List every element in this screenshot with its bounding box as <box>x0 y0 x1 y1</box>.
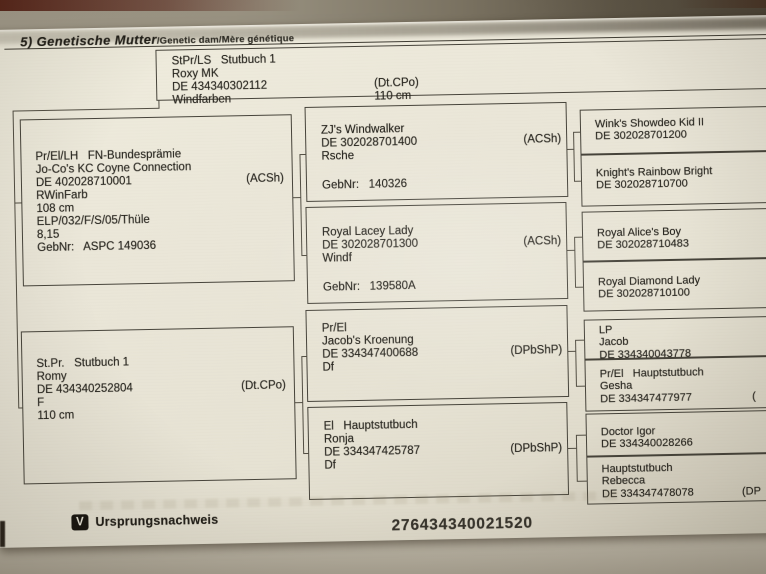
connector-line <box>303 453 309 454</box>
pedigree-line-text: 108 cm <box>36 202 74 215</box>
connector-line <box>576 435 578 482</box>
connector-line <box>301 255 307 256</box>
pedigree-line-text: F <box>37 397 44 409</box>
pedigree-box-g4-6: Pr/El HauptstutbuchGeshaDE 334347477977( <box>584 355 766 412</box>
pedigree-line-text: DE 334340028266 <box>601 437 693 451</box>
connector-line <box>574 237 576 288</box>
breed-code: (Dt.CPo) <box>241 379 286 393</box>
connector-line <box>573 132 581 133</box>
pedigree-line-text: DE 334347400688 <box>322 347 418 361</box>
pedigree-line-text: GebNr: ASPC 149036 <box>37 240 156 254</box>
pedigree-line-text: LP <box>599 324 613 336</box>
pedigree-line-text: ZJ's Windwalker <box>321 123 405 137</box>
pedigree-line-text: Royal Lacey Lady <box>322 225 414 239</box>
pedigree-line-text: DE 302028710483 <box>597 238 689 252</box>
pedigree-line-text: DE 302028710100 <box>598 287 690 301</box>
connector-line <box>18 407 23 408</box>
pedigree-box-g4-7: Doctor IgorDE 334340028266 <box>585 409 766 457</box>
pedigree-line-text: 110 cm <box>37 409 74 422</box>
pedigree-line-text: DE 302028701400 <box>321 136 417 150</box>
connector-line <box>573 132 575 182</box>
breed-code: (Dt.CPo) <box>374 77 419 91</box>
pedigree-line-text: Rsche <box>321 150 354 163</box>
connector-line <box>301 356 304 454</box>
connector-line <box>301 356 307 357</box>
pedigree-box-g4-1: Wink's Showdeo Kid IIDE 302028701200 <box>580 105 766 155</box>
pedigree-line-text: Windf <box>322 252 352 265</box>
connector-line <box>576 386 586 387</box>
pedigree-line-text: Rebecca <box>602 475 646 488</box>
v-badge: V <box>71 514 88 530</box>
gebnr-line: GebNr: 140326 <box>322 175 567 193</box>
pedigree-box-g3-sire-sire: ZJ's WindwalkerDE 302028701400(ACSh)Rsch… <box>305 102 569 202</box>
pedigree-box-g4-2: Knight's Rainbow BrightDE 302028710700 <box>581 150 766 207</box>
photo-background-maroon-strip <box>0 0 300 11</box>
connector-line <box>13 108 160 112</box>
connector-line <box>577 481 588 482</box>
connector-line <box>299 154 306 155</box>
connector-line <box>576 435 587 436</box>
pedigree-line-text: ELP/032/F/S/05/Thüle <box>37 214 150 228</box>
document-number: 276434340021520 <box>391 517 533 533</box>
footer: V Ursprungsnachweis <box>71 512 218 531</box>
pedigree-box-g3-dam-sire: Pr/ElJacob's KroenungDE 334347400688(DPb… <box>305 305 569 402</box>
breed-code: (ACSh) <box>523 133 561 147</box>
pedigree-box-genetic-dam: StPr/LS Stutbuch 1Roxy MKDE 434340302112… <box>155 37 766 101</box>
connector-line <box>574 237 583 238</box>
pedigree-line-text: Df <box>324 459 336 471</box>
pedigree-line-text: DE 334347425787 <box>324 445 420 459</box>
connector-line <box>575 340 577 387</box>
connector-line <box>14 202 21 203</box>
pedigree-box-g4-4: Royal Diamond LadyDE 302028710100 <box>583 257 766 312</box>
pedigree-line-text: Pr/El <box>322 322 347 334</box>
pedigree-line-text: St.Pr. Stutbuch 1 <box>36 356 129 370</box>
photo-background-corner-sliver <box>0 521 5 547</box>
pedigree-line-text: Gesha <box>600 380 633 393</box>
breed-code: (DP <box>742 485 761 498</box>
breed-code: (DPbShP) <box>510 442 562 456</box>
origin-certificate-label: Ursprungsnachweis <box>95 513 218 528</box>
pedigree-line-text: DE 302028701300 <box>322 238 418 252</box>
pedigree-line-text: RWinFarb <box>36 189 88 202</box>
breed-code: (ACSh) <box>246 172 284 186</box>
pedigree-box-g4-3: Royal Alice's BoyDE 302028710483 <box>582 207 766 262</box>
pedigree-line-text: Hauptstutbuch <box>601 462 672 475</box>
pedigree-line-text: DE 402028710001 <box>36 175 132 189</box>
photo-background-maroon-right <box>676 0 766 8</box>
connector-line <box>575 340 585 341</box>
pedigree-line-text: Ronja <box>324 433 354 446</box>
connector-line <box>299 154 302 256</box>
pedigree-line-text: Roxy MK <box>172 68 219 81</box>
pedigree-line-text: StPr/LS Stutbuch 1 <box>172 54 276 68</box>
connector-line <box>574 181 582 182</box>
pedigree-line-text: DE 434340252804 <box>37 382 133 396</box>
pedigree-box-dam-sire: Pr/El/LH FN-BundesprämieJo-Co's KC Coyne… <box>20 114 295 286</box>
connector-line <box>13 111 20 409</box>
connector-line <box>575 287 584 288</box>
height-note: 110 cm <box>374 90 411 104</box>
photo-of-pedigree-document: 5) Genetische Mutter/Genetic dam/Mère gé… <box>0 0 766 574</box>
pedigree-line-text: Df <box>322 361 334 373</box>
pedigree-line-text: Windfarben <box>172 93 231 106</box>
pedigree-line-text: Jacob <box>599 336 629 349</box>
pedigree-line-text: Romy <box>37 371 67 384</box>
pedigree-line-text: 8,15 <box>37 229 60 241</box>
pedigree-line-text: DE 334347477977 <box>600 391 692 405</box>
gebnr-line: GebNr: 139580A <box>323 277 567 295</box>
pedigree-line-text: DE 302028701200 <box>595 129 687 143</box>
pedigree-box-g3-sire-dam: Royal Lacey LadyDE 302028701300(ACSh)Win… <box>305 202 568 304</box>
pedigree-line-text: El Hauptstutbuch <box>324 419 418 433</box>
pedigree-line-text: Jacob's Kroenung <box>322 334 414 348</box>
pedigree-line-text: Royal Alice's Boy <box>597 226 681 240</box>
pedigree-box-dam-dam: St.Pr. Stutbuch 1RomyDE 434340252804(Dt.… <box>21 326 297 484</box>
pedigree-line-text: Doctor Igor <box>601 425 656 438</box>
pedigree-paper: 5) Genetische Mutter/Genetic dam/Mère gé… <box>0 14 766 548</box>
breed-code: ( <box>752 390 756 402</box>
breed-code: (ACSh) <box>523 235 561 249</box>
pedigree-box-g4-5: LPJacobDE 334340043778 <box>584 315 766 360</box>
pedigree-line-text: DE 434340302112 <box>172 80 267 94</box>
pedigree-line-text: DE 302028710700 <box>596 178 688 192</box>
pedigree-box-g3-dam-dam: El HauptstutbuchRonjaDE 334347425787(DPb… <box>307 402 569 500</box>
breed-code: (DPbShP) <box>510 344 562 358</box>
